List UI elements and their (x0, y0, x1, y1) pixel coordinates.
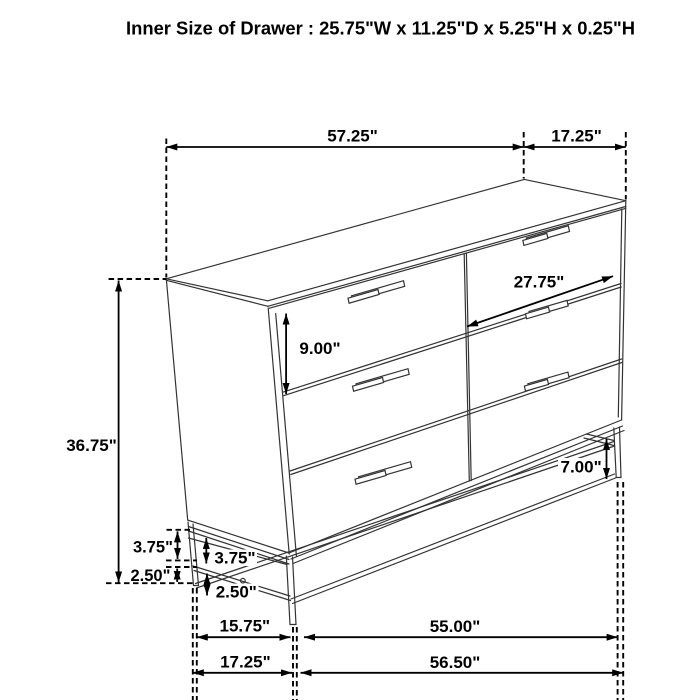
svg-text:3.75": 3.75" (214, 549, 255, 568)
svg-text:17.25": 17.25" (220, 652, 271, 671)
svg-text:2.50": 2.50" (131, 567, 171, 585)
svg-text:3.75": 3.75" (133, 538, 173, 556)
svg-text:56.50": 56.50" (430, 653, 481, 672)
svg-text:15.75": 15.75" (219, 617, 270, 636)
svg-text:9.00": 9.00" (299, 339, 340, 358)
svg-text:57.25": 57.25" (327, 126, 378, 145)
svg-text:2.50": 2.50" (216, 583, 257, 602)
svg-text:Inner Size of Drawer : 25.75"W: Inner Size of Drawer : 25.75"W x 11.25"D… (126, 18, 635, 39)
svg-text:7.00": 7.00" (561, 458, 602, 477)
svg-text:55.00": 55.00" (430, 617, 481, 636)
svg-text:17.25": 17.25" (551, 127, 602, 146)
svg-text:36.75": 36.75" (66, 436, 117, 455)
svg-text:27.75": 27.75" (514, 273, 565, 292)
